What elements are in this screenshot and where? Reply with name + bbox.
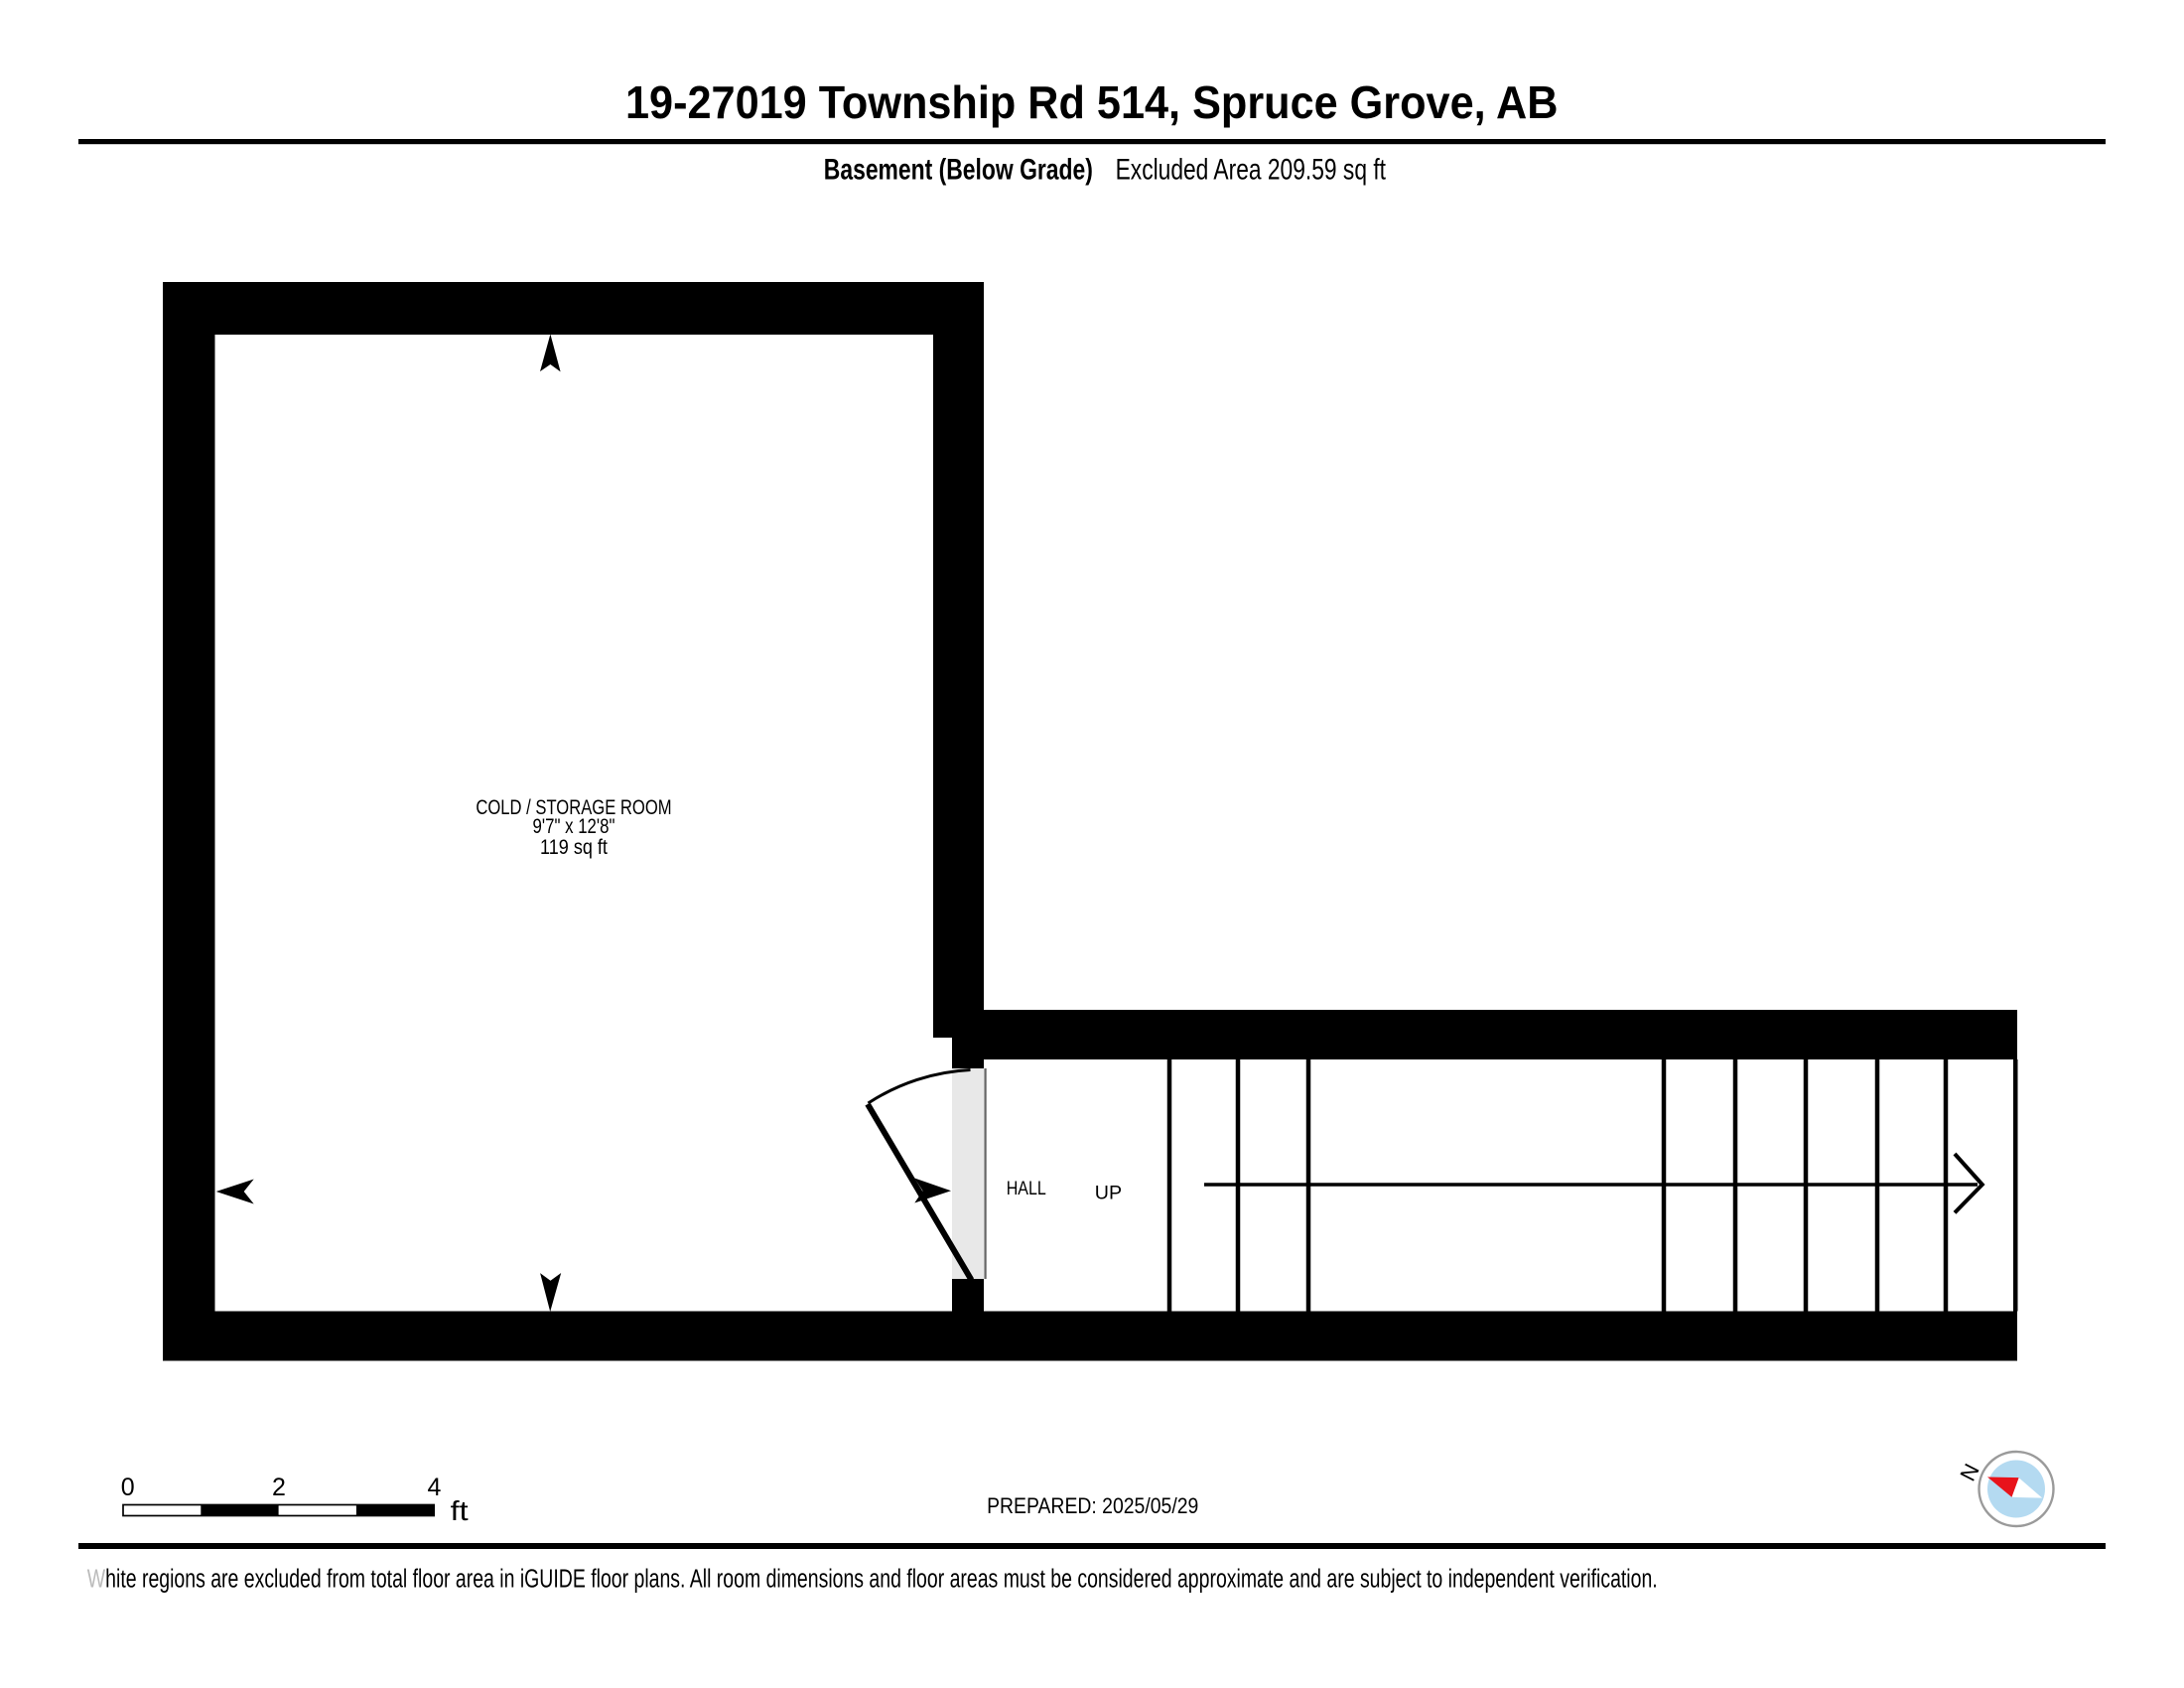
svg-text:4: 4	[427, 1474, 441, 1501]
svg-text:PREPARED: 2025/05/29: PREPARED: 2025/05/29	[987, 1493, 1198, 1518]
svg-text:UP: UP	[1095, 1183, 1122, 1204]
svg-text:0: 0	[121, 1474, 135, 1501]
svg-text:119 sq ft: 119 sq ft	[540, 834, 608, 859]
svg-text:ft: ft	[451, 1495, 469, 1526]
svg-text:Excluded Area 209.59 sq ft: Excluded Area 209.59 sq ft	[1116, 154, 1387, 187]
svg-text:HALL: HALL	[1007, 1179, 1046, 1199]
svg-text:2: 2	[272, 1474, 286, 1501]
svg-text:White regions are excluded fro: White regions are excluded from total fl…	[87, 1563, 1658, 1593]
svg-text:Basement (Below Grade): Basement (Below Grade)	[824, 154, 1093, 187]
svg-text:19-27019 Township Rd 514, Spru: 19-27019 Township Rd 514, Spruce Grove, …	[625, 76, 1559, 128]
